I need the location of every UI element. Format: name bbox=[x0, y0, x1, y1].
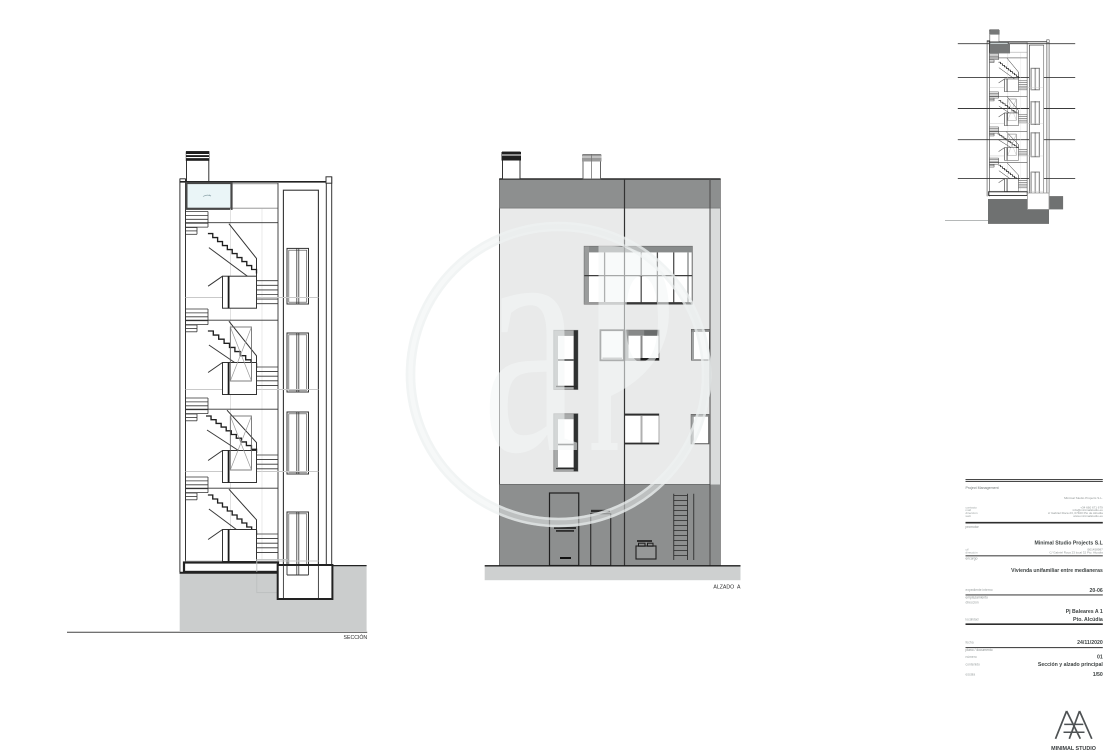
svg-text:dirección: dirección bbox=[966, 600, 979, 604]
svg-text:Sección y alzado principal: Sección y alzado principal bbox=[1038, 662, 1103, 668]
svg-text:ALZADO A: ALZADO A bbox=[713, 585, 741, 591]
svg-text:contenido: contenido bbox=[966, 662, 980, 666]
svg-text:MINIMAL STUDIO: MINIMAL STUDIO bbox=[1051, 746, 1096, 752]
svg-text:a: a bbox=[482, 153, 580, 524]
svg-text:emplazamiento: emplazamiento bbox=[966, 595, 989, 599]
svg-text:Minimal Studio Projects S.L.: Minimal Studio Projects S.L. bbox=[1064, 496, 1103, 500]
svg-text:encargo: encargo bbox=[966, 556, 978, 560]
svg-text:Pto. Alcúdia: Pto. Alcúdia bbox=[1073, 617, 1103, 623]
svg-text:dirección: dirección bbox=[966, 551, 978, 555]
svg-text:expediente interno: expediente interno bbox=[966, 588, 993, 592]
svg-text:fecha: fecha bbox=[966, 641, 974, 645]
svg-text:Project Management: Project Management bbox=[966, 486, 999, 490]
svg-text:20-06: 20-06 bbox=[1090, 588, 1103, 594]
svg-text:escala: escala bbox=[966, 673, 976, 677]
svg-text:Vivienda unifamiliar entre med: Vivienda unifamiliar entre medianeras bbox=[1011, 568, 1103, 574]
svg-text:01: 01 bbox=[1097, 654, 1103, 660]
svg-text:www.minimalstudio.es: www.minimalstudio.es bbox=[1073, 514, 1103, 518]
svg-text:web: web bbox=[966, 514, 972, 518]
svg-text:plano / documento: plano / documento bbox=[966, 648, 993, 652]
svg-text:promotor: promotor bbox=[966, 525, 980, 529]
svg-text:Pj Baleares A 1: Pj Baleares A 1 bbox=[1066, 609, 1103, 615]
svg-text:C/ Gabriel Roca 23 local 32 Pt: C/ Gabriel Roca 23 local 32 Pto. Alcudia bbox=[1049, 551, 1103, 555]
svg-text:localidad: localidad bbox=[966, 617, 979, 621]
svg-text:1/50: 1/50 bbox=[1093, 672, 1103, 678]
svg-text:número: número bbox=[966, 655, 977, 659]
svg-text:24/11/2020: 24/11/2020 bbox=[1077, 640, 1103, 646]
svg-text:Minimal Studio Projects S.L: Minimal Studio Projects S.L bbox=[1034, 541, 1103, 547]
svg-text:SECCIÓN: SECCIÓN bbox=[344, 634, 368, 641]
